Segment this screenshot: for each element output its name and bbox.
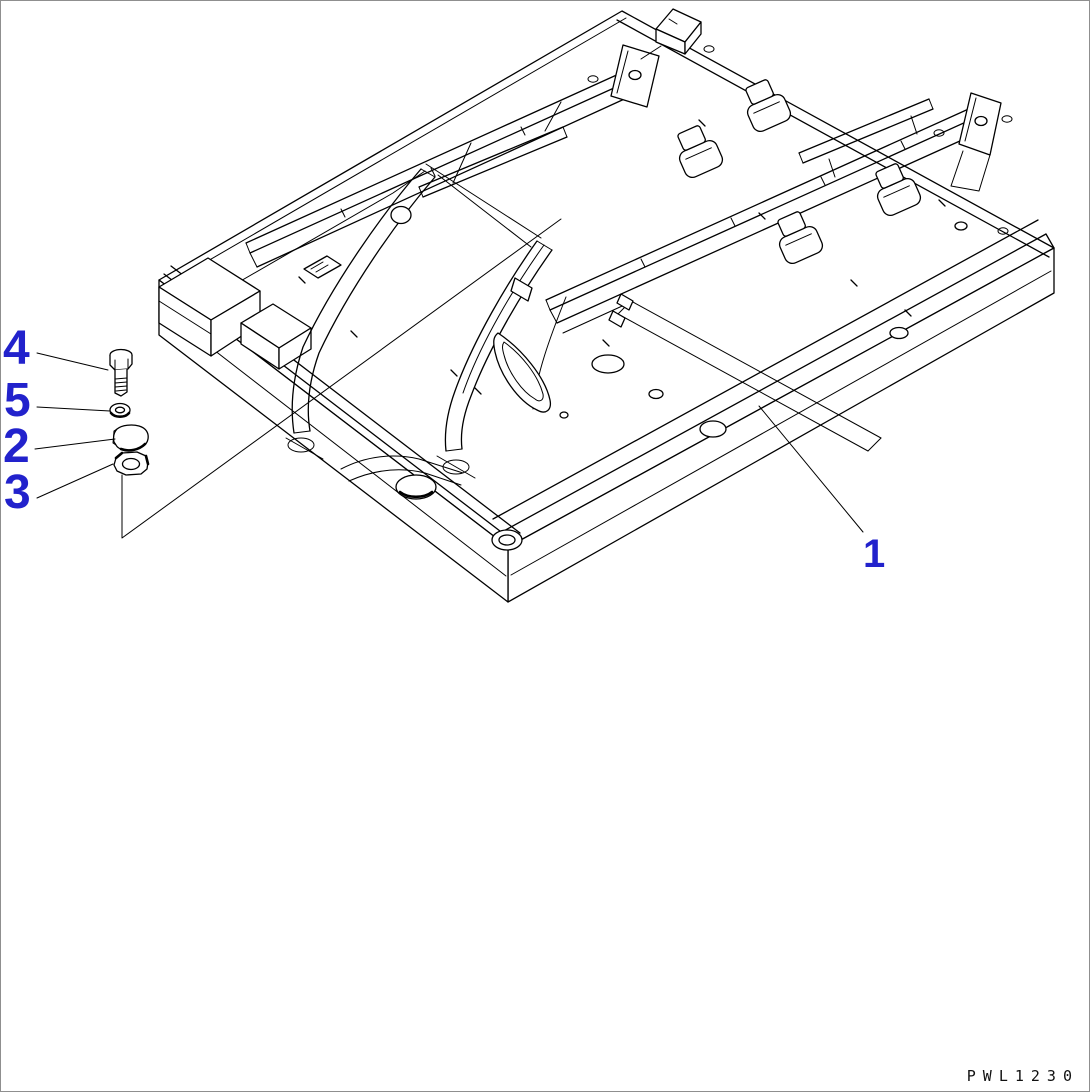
deck-plate	[159, 11, 1054, 602]
drawing-code: PWL1230	[967, 1067, 1079, 1085]
parts-diagram-page: 4 5 2 3 1 PWL1230	[0, 0, 1090, 1092]
leader-line-2	[35, 439, 115, 449]
cap-drawing	[113, 425, 148, 450]
washer-drawing	[110, 404, 130, 417]
callout-3[interactable]: 3	[4, 466, 31, 519]
technical-drawing: 4 5 2 3 1	[1, 1, 1090, 1092]
nut-drawing	[114, 452, 148, 475]
frame-drawing	[159, 9, 1054, 602]
callout-1[interactable]: 1	[863, 532, 885, 576]
leader-line-3	[37, 464, 113, 498]
leader-line-5	[37, 407, 110, 411]
callout-4[interactable]: 4	[3, 322, 30, 375]
bolt-drawing	[110, 350, 132, 397]
leader-line-4	[37, 353, 108, 370]
